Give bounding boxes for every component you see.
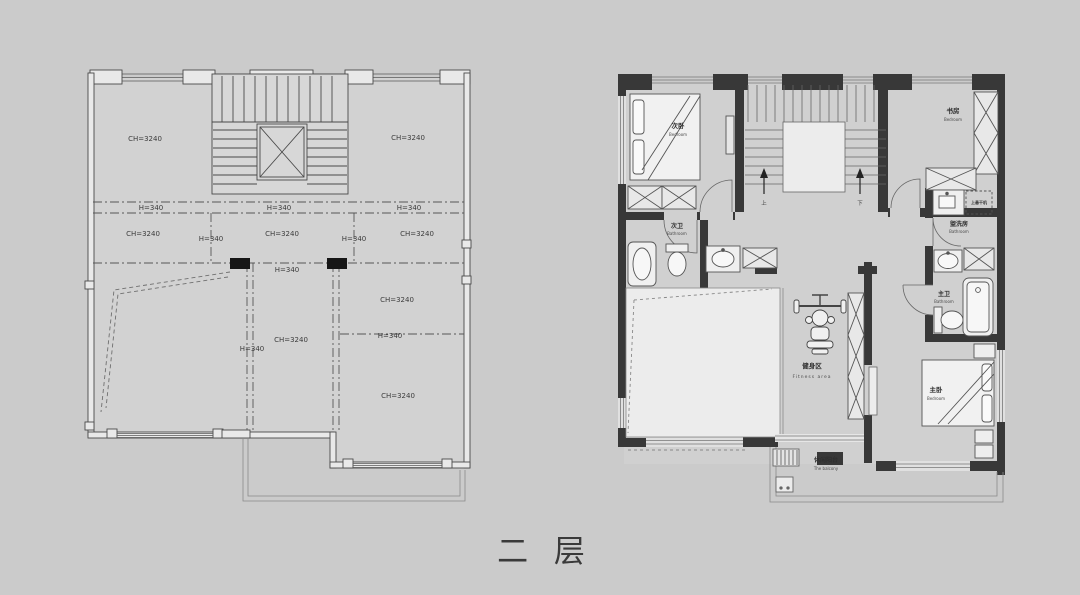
room-label-study: 书房 — [947, 106, 961, 115]
ceiling-height-label: CH=3240 — [274, 336, 308, 344]
drying-rack-icon — [773, 449, 799, 492]
room-label-study-en: Bedroom — [944, 117, 962, 122]
wardrobe-icon — [628, 186, 696, 209]
wardrobe-icon — [974, 92, 998, 174]
beam-height-label: H=340 — [397, 204, 422, 212]
floor-plan-canvas: CH=3240 CH=3240 H=340 H=340 H=340 CH=324… — [0, 0, 1080, 595]
beam-height-label: H=340 — [240, 345, 265, 353]
elevator-shaft-icon — [257, 124, 307, 180]
dryer-note-label: 上悬干机 — [971, 199, 987, 205]
ceiling-height-label: CH=3240 — [381, 392, 415, 400]
void-room — [626, 288, 783, 450]
sink-icon — [706, 246, 740, 272]
left-floor-plan: CH=3240 CH=3240 H=340 H=340 H=340 CH=324… — [85, 70, 471, 501]
beam-height-label: H=340 — [267, 204, 292, 212]
bathtub-icon — [963, 278, 993, 336]
ceiling-height-label: CH=3240 — [400, 230, 434, 238]
bed-icon — [630, 94, 700, 180]
bathtub-icon — [628, 242, 656, 286]
cabinet-icon — [926, 168, 976, 190]
ceiling-height-label: CH=3240 — [380, 296, 414, 304]
ceiling-height-label: CH=3240 — [265, 230, 299, 238]
beam-height-label: H=340 — [275, 266, 300, 274]
ceiling-height-label: CH=3240 — [126, 230, 160, 238]
hall-cabinet-icon — [743, 248, 777, 268]
sliding-door-icon — [869, 367, 877, 415]
room-label-master-bedroom-en: Bedroom — [927, 396, 945, 401]
side-table-icon — [726, 116, 734, 154]
fitness-balcony-window-icon — [775, 434, 864, 442]
room-label-fitness-en: Fitness area — [792, 374, 831, 380]
room-label-washroom: 盥洗房 — [950, 220, 968, 228]
toilet-icon — [666, 244, 688, 276]
room-label-bedroom2: 次卧 — [672, 121, 686, 130]
beam-height-label: H=340 — [199, 235, 224, 243]
stair-down-label: 下 — [857, 200, 863, 207]
nightstand-icon — [974, 344, 995, 358]
laundry-counter-icon — [933, 190, 964, 215]
column — [327, 258, 347, 269]
room-label-fitness: 健身区 — [802, 361, 822, 370]
column — [230, 258, 250, 269]
room-label-bath2-en: Bathroom — [667, 231, 687, 236]
room-label-bath2: 次卫 — [671, 222, 683, 230]
room-label-master-bedroom: 主卧 — [930, 385, 944, 394]
room-label-balcony-en: The balcony — [813, 466, 839, 471]
right-floor-plan: 上 下 — [618, 74, 1005, 502]
ceiling-height-label: CH=3240 — [391, 134, 425, 142]
room-label-washroom-en: Bathroom — [949, 229, 969, 234]
floor-plan-page: CH=3240 CH=3240 H=340 H=340 H=340 CH=324… — [0, 0, 1080, 595]
beam-height-label: H=340 — [342, 235, 367, 243]
wardrobe-icon — [848, 293, 864, 419]
beam-height-label: H=340 — [139, 204, 164, 212]
beam-height-label: H=340 — [378, 332, 403, 340]
room-label-balcony: 休闲阳台 — [813, 456, 838, 464]
ceiling-height-label: CH=3240 — [128, 135, 162, 143]
room-label-bedroom2-en: Bedroom — [669, 132, 687, 137]
room-label-master-bath-en: Bathroom — [934, 299, 954, 304]
vanity-basin-icon — [934, 250, 962, 272]
stair-up-label: 上 — [761, 199, 767, 207]
room-label-master-bath: 主卫 — [938, 290, 950, 298]
cabinet-icon — [964, 248, 994, 270]
page-title: 二 层 — [497, 534, 593, 570]
